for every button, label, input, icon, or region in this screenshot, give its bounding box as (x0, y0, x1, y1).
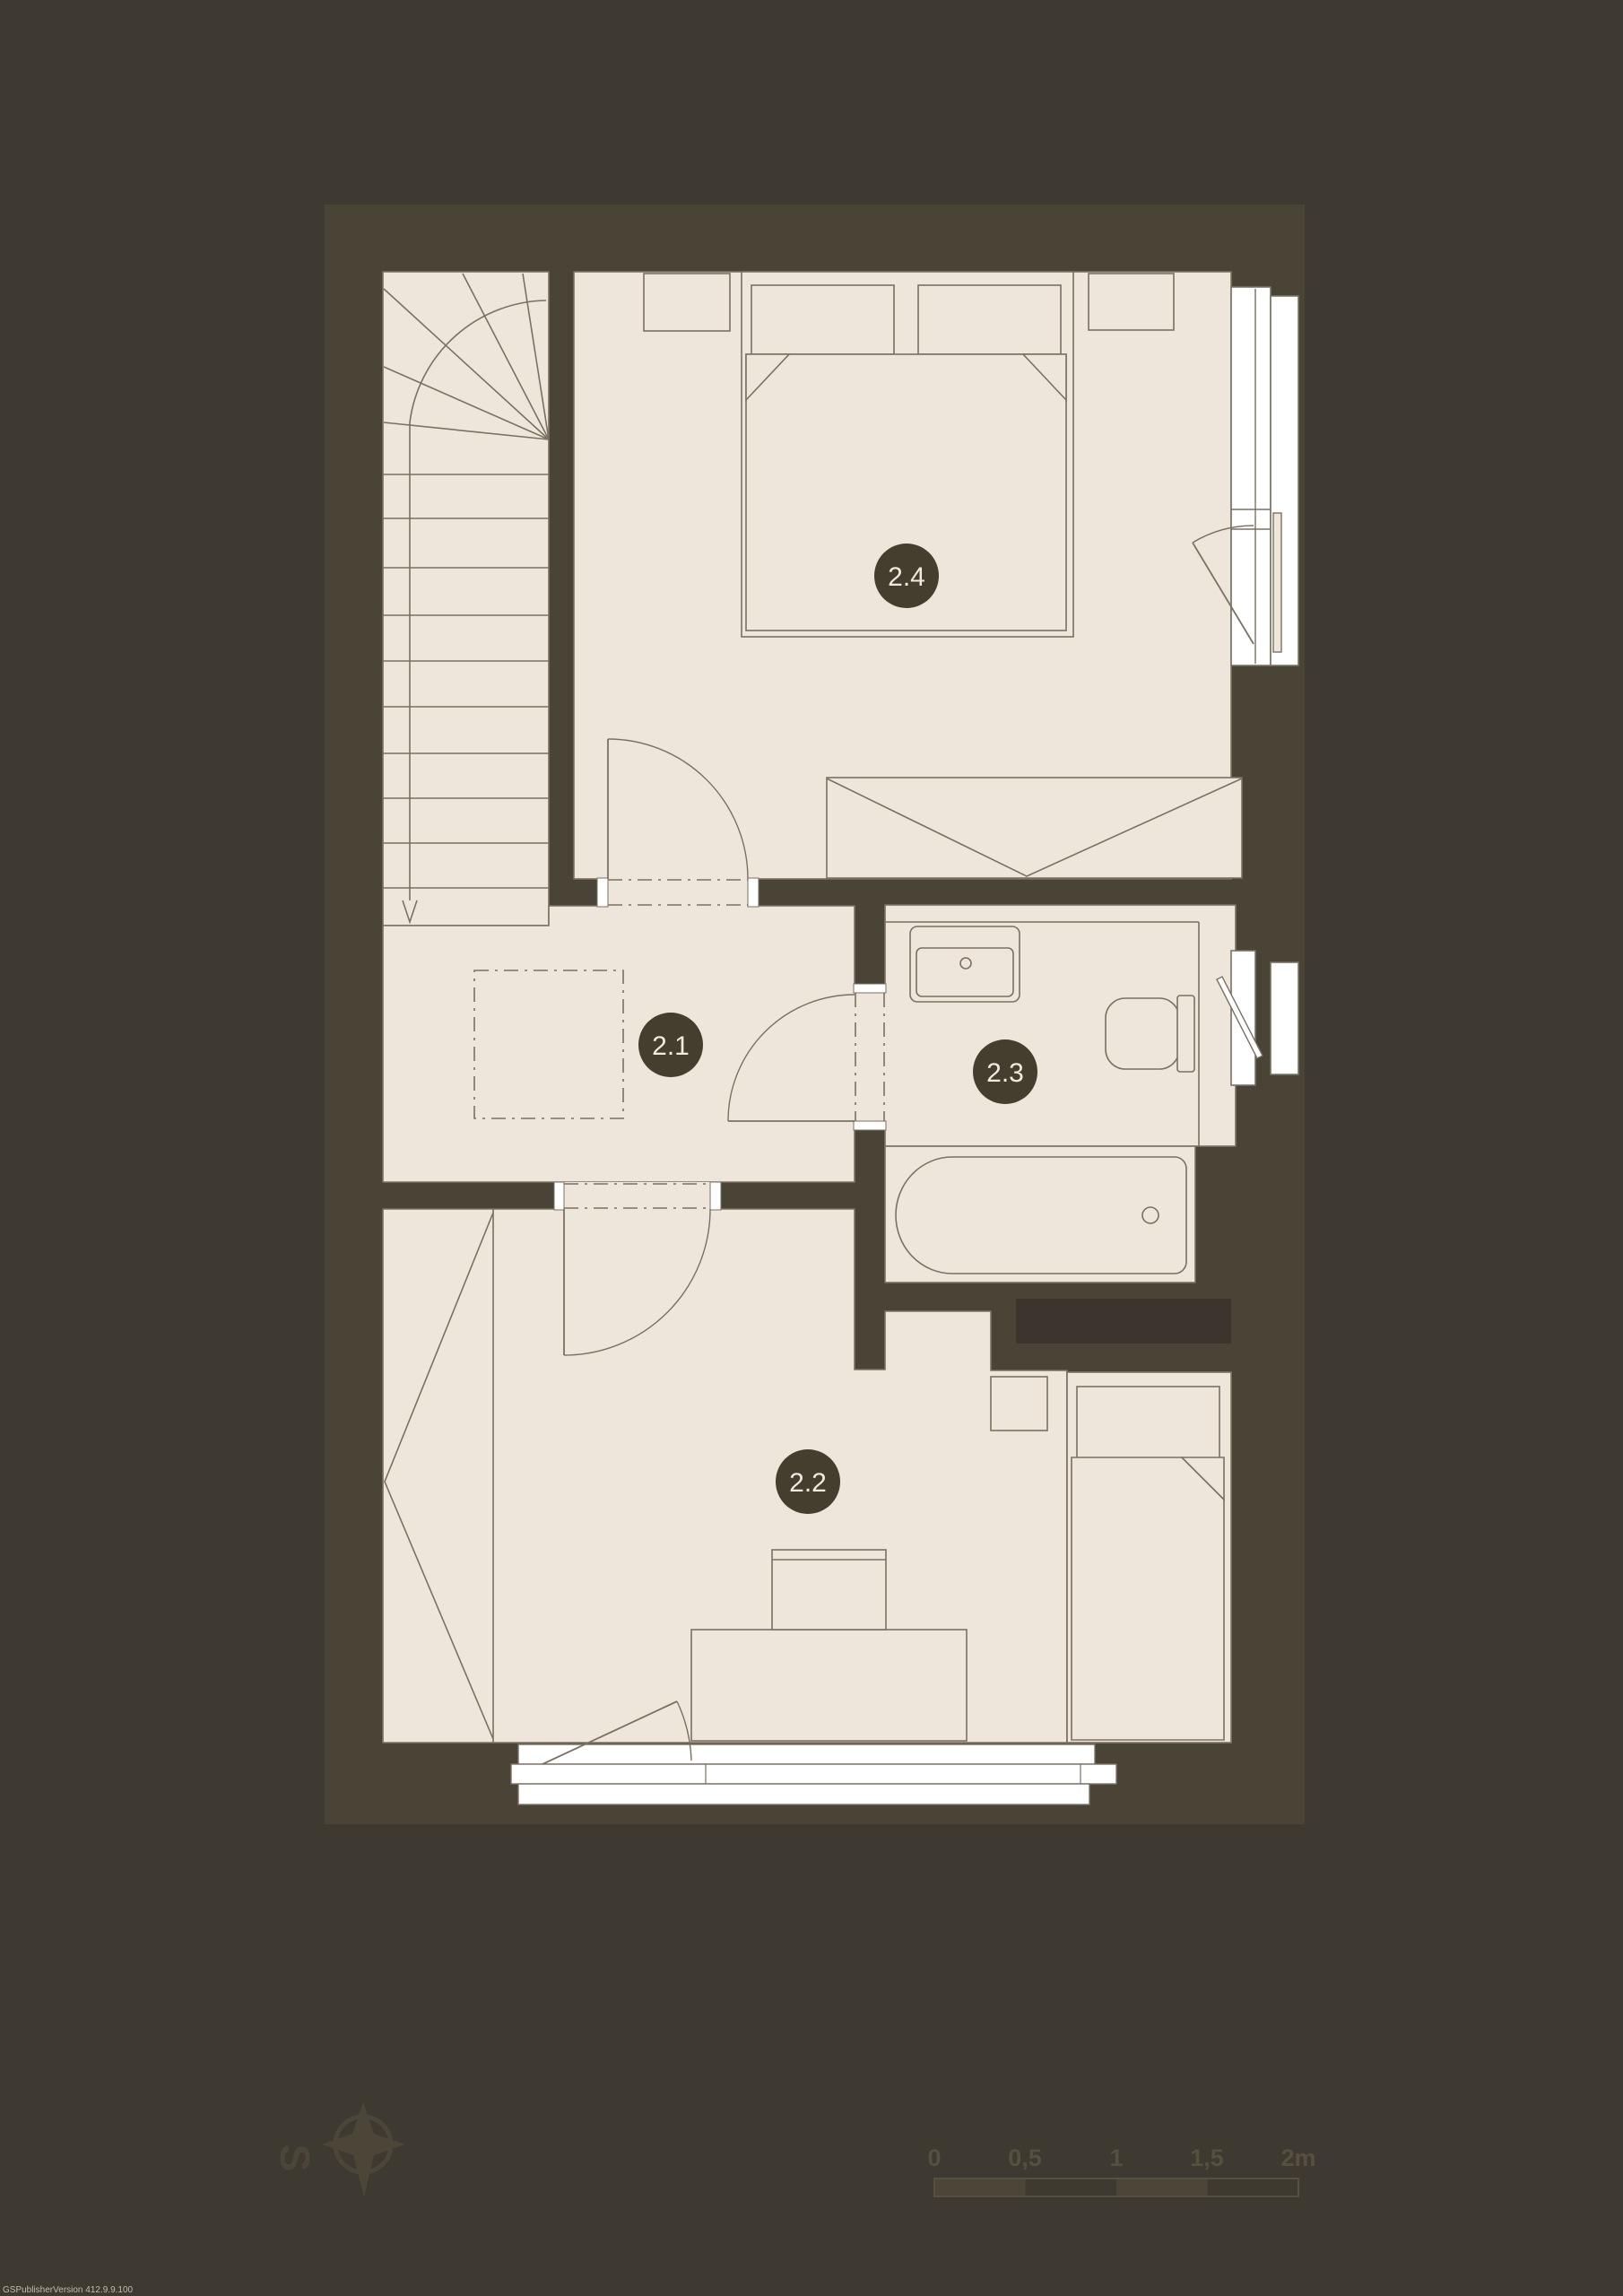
compass-south-letter: S (272, 2144, 318, 2172)
window-room-2-2 (511, 1744, 1116, 1805)
floor-plan-page: 2.4 2.1 2.3 2.2 S 0 0,5 1 1,5 2m GSPubli… (0, 0, 1623, 2296)
single-bed-pillow (1077, 1387, 1219, 1465)
room-2-1 (383, 906, 855, 1182)
room-label-2-3-text: 2.3 (986, 1058, 1024, 1088)
room-label-2-2: 2.2 (776, 1449, 840, 1514)
nightstand-left (644, 274, 730, 331)
toilet-cistern (1177, 996, 1194, 1072)
scale-tick-2m: 2m (1280, 2144, 1315, 2171)
nightstand-2-2 (991, 1377, 1047, 1431)
room-label-2-4: 2.4 (874, 544, 939, 608)
pillow-left (751, 285, 894, 354)
chair (772, 1550, 886, 1630)
pillow-right (918, 285, 1061, 354)
washbasin-bowl (916, 948, 1013, 996)
compass: S (272, 2102, 405, 2197)
opening-bedroom-2-4 (608, 878, 748, 907)
room-label-2-1-text: 2.1 (652, 1031, 690, 1061)
room-label-2-4-text: 2.4 (888, 562, 925, 592)
scale-tick-1: 1 (1109, 2144, 1123, 2171)
room-label-2-3: 2.3 (973, 1039, 1037, 1104)
nightstand-right (1089, 274, 1174, 330)
scale-seg-3 (1116, 2179, 1208, 2196)
washbasin-faucet (960, 958, 971, 969)
scale-tick-0: 0 (927, 2144, 941, 2171)
watermark-text: GSPublisherVersion 412.9.9.100 (3, 2285, 134, 2295)
chest-bench (827, 778, 1242, 878)
duct-shaft (1016, 1299, 1231, 1344)
toilet-bowl (1106, 998, 1179, 1069)
single-bed-duvet (1072, 1457, 1224, 1740)
window-leaf (1273, 513, 1281, 652)
scale-tick-05: 0,5 (1008, 2144, 1042, 2171)
opening-room-2-2 (564, 1182, 710, 1210)
scale-seg-1 (934, 2179, 1026, 2196)
scale-tick-15: 1,5 (1190, 2144, 1224, 2171)
window-bedroom-2-4 (1231, 287, 1298, 665)
desk (691, 1630, 967, 1741)
scale-bar: 0 0,5 1 1,5 2m (927, 2144, 1315, 2196)
opening-bathroom (854, 993, 886, 1121)
bathtub-drain (1142, 1207, 1159, 1223)
floor-plan-drawing: 2.4 2.1 2.3 2.2 S 0 0,5 1 1,5 2m GSPubli… (0, 0, 1623, 2296)
room-label-2-2-text: 2.2 (789, 1468, 827, 1498)
room-staircase (383, 272, 549, 926)
room-label-2-1: 2.1 (638, 1013, 703, 1077)
